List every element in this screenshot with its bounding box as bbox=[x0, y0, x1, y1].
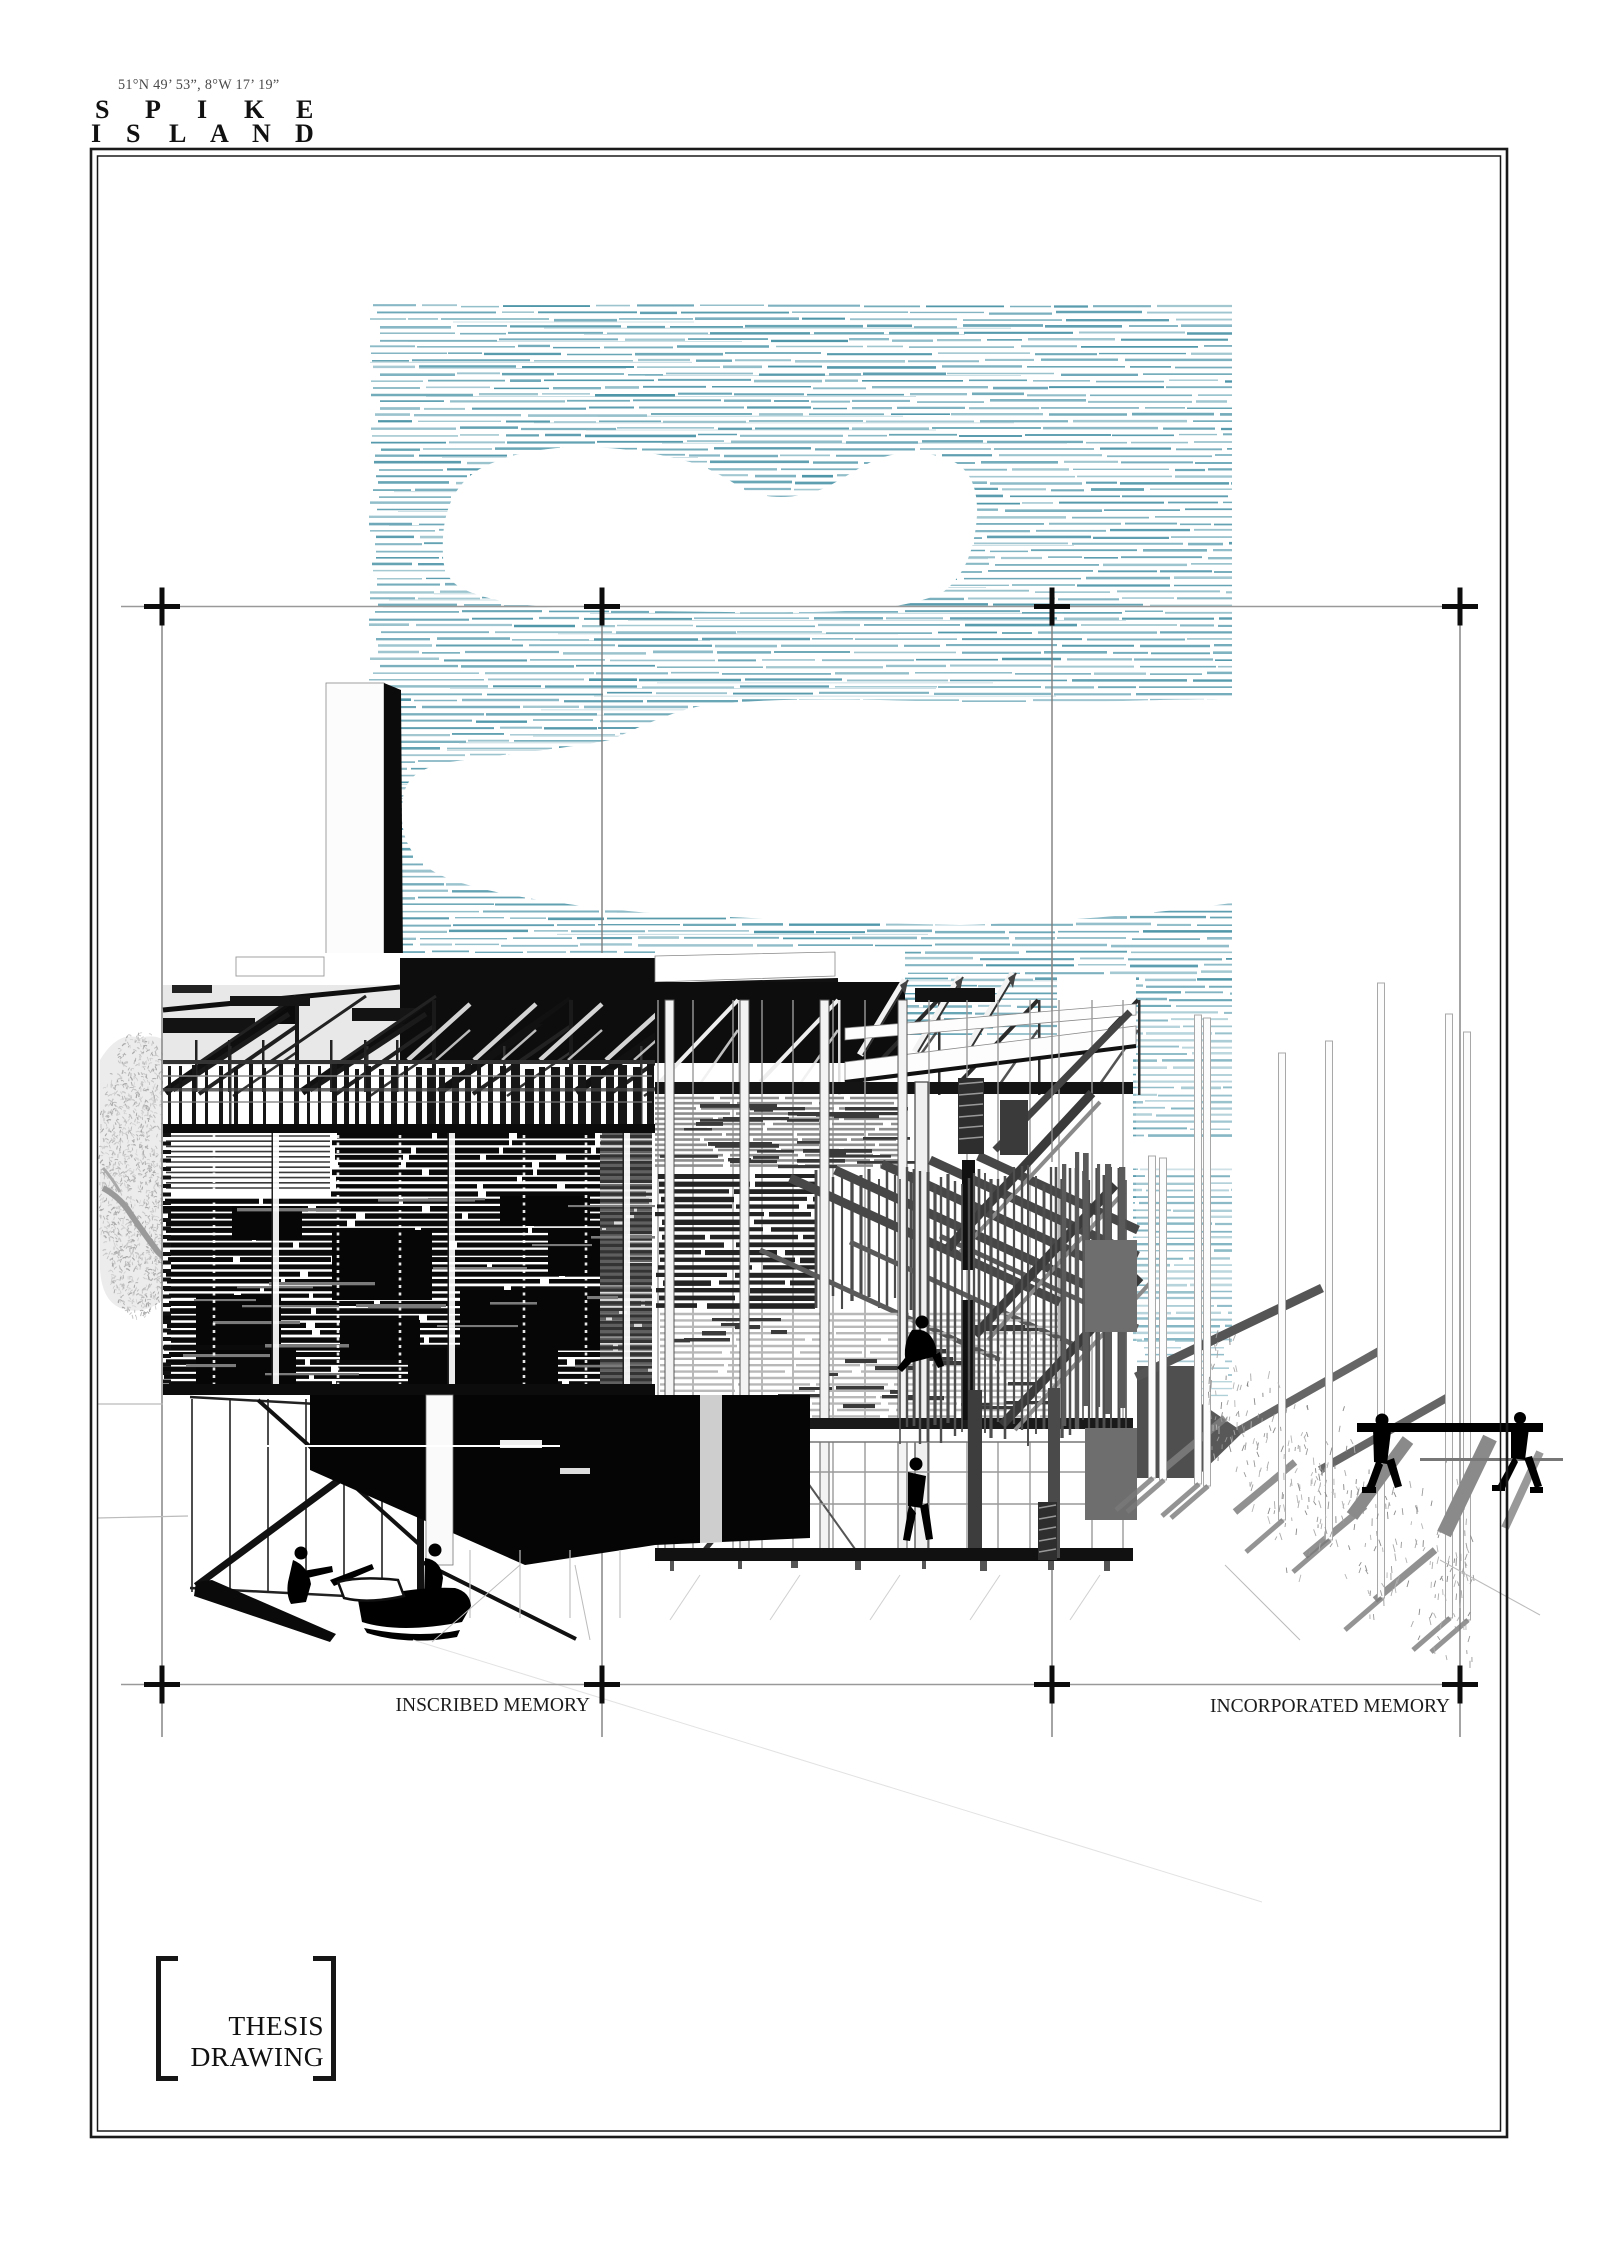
svg-text:I: I bbox=[197, 95, 207, 124]
svg-text:THESIS: THESIS bbox=[228, 2010, 324, 2041]
svg-text:I: I bbox=[91, 119, 101, 148]
svg-text:S: S bbox=[126, 119, 140, 148]
svg-text:L: L bbox=[169, 119, 186, 148]
svg-text:INSCRIBED MEMORY: INSCRIBED MEMORY bbox=[396, 1695, 591, 1716]
svg-text:DRAWING: DRAWING bbox=[191, 2041, 325, 2072]
svg-text:INCORPORATED MEMORY: INCORPORATED MEMORY bbox=[1210, 1696, 1450, 1717]
svg-text:A: A bbox=[210, 119, 229, 148]
svg-text:D: D bbox=[295, 119, 314, 148]
svg-text:51°N 49’ 53”, 8°W 17’ 19”: 51°N 49’ 53”, 8°W 17’ 19” bbox=[118, 77, 279, 93]
svg-text:P: P bbox=[145, 95, 161, 124]
svg-text:N: N bbox=[252, 119, 271, 148]
